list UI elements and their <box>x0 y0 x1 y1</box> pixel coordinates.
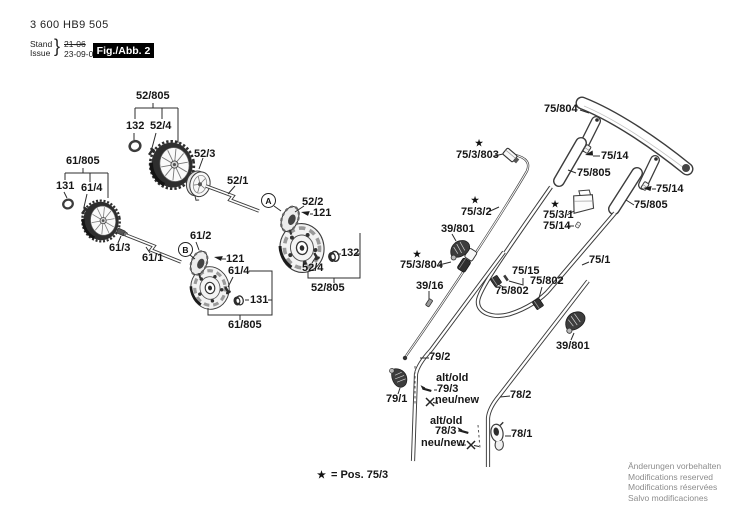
part-label-78-1: 78/1 <box>511 429 532 439</box>
part-label-52-1: 52/1 <box>227 176 248 186</box>
wheel-front-left <box>79 198 123 245</box>
part-label-alt-old-79: alt/old <box>436 373 468 383</box>
part-label-75-14-2: 75/14 <box>656 184 684 194</box>
arrow-icon <box>301 210 310 216</box>
part-label-75-802-right: 75/802 <box>530 276 564 286</box>
star-symbol: ★ <box>475 139 483 148</box>
part-label-52-805-top: 52/805 <box>136 91 170 101</box>
clamp-78-1-drawing <box>489 422 507 451</box>
assembly-marker-a: A <box>261 193 276 208</box>
part-label-79-1: 79/1 <box>386 394 407 404</box>
part-label-75-14-3: 75/14 <box>543 221 571 231</box>
part-label-75-14-1: 75/14 <box>601 151 629 161</box>
star-symbol: ★ <box>551 200 559 209</box>
ring-131-bottom <box>233 295 244 306</box>
screw-75-15-drawing <box>503 275 509 282</box>
star-symbol: ★ <box>413 250 421 259</box>
part-label-52-2: 52/2 <box>302 197 323 207</box>
cap-75-14-small <box>575 222 581 228</box>
part-label-75-802-left: 75/802 <box>495 286 529 296</box>
part-label-61-2: 61/2 <box>190 231 211 241</box>
new-screw-78-3 <box>467 441 479 449</box>
cable-guide-funnel-drawing <box>570 187 597 217</box>
part-label-79-3: 79/3 <box>437 384 458 394</box>
part-label-75-805-1: 75/805 <box>577 168 611 178</box>
part-label-75-805-2: 75/805 <box>634 200 668 210</box>
part-label-132-top: 132 <box>126 121 144 131</box>
part-label-121-b: 121 <box>226 254 244 264</box>
part-label-75-1: 75/1 <box>589 255 610 265</box>
part-label-75-3-1: 75/3/1 <box>543 210 574 220</box>
part-label-78-2: 78/2 <box>510 390 531 400</box>
part-label-79-2: 79/2 <box>429 352 450 362</box>
part-label-61-3: 61/3 <box>109 243 130 253</box>
lever-79-1 <box>389 366 408 389</box>
parts-diagram-page: 3 600 HB9 505 Stand Issue } 21-06 23-09-… <box>0 0 750 530</box>
part-label-61-4-top: 61/4 <box>81 183 102 193</box>
bolt-right <box>532 298 544 310</box>
assembly-marker-b: B <box>178 242 193 257</box>
part-label-neu-new-79: neu/new <box>435 395 479 405</box>
part-label-61-1: 61/1 <box>142 253 163 263</box>
part-label-neu-new-78: neu/new <box>421 438 465 448</box>
part-label-52-3: 52/3 <box>194 149 215 159</box>
spacer-39-16-drawing <box>425 299 432 307</box>
part-label-78-3: 78/3 <box>435 426 456 436</box>
part-label-61-805-top: 61/805 <box>66 156 100 166</box>
part-label-131-top: 131 <box>56 181 74 191</box>
part-label-131-bottom: 131 <box>250 295 268 305</box>
old-screw-79-3 <box>419 385 432 392</box>
ring-132-top <box>128 140 141 153</box>
ring-131-top <box>62 198 74 209</box>
star-symbol: ★ <box>471 196 479 205</box>
ring-132-bottom <box>327 251 340 263</box>
part-label-75-3-803: 75/3/803 <box>456 150 499 160</box>
part-label-61-4-bottom: 61/4 <box>228 266 249 276</box>
part-label-52-4-top: 52/4 <box>150 121 171 131</box>
part-label-75-3-804: 75/3/804 <box>400 260 443 270</box>
part-label-52-4-bottom: 52/4 <box>302 263 323 273</box>
part-label-75-804: 75/804 <box>544 104 578 114</box>
axle-52-1-drawing <box>206 186 259 211</box>
part-label-121-a: 121 <box>313 208 331 218</box>
part-label-39-16: 39/16 <box>416 281 444 291</box>
part-label-75-3-2: 75/3/2 <box>461 207 492 217</box>
arrow-icon <box>214 255 223 261</box>
leader-lines <box>64 103 656 445</box>
part-label-39-801-right: 39/801 <box>556 341 590 351</box>
part-label-61-805-bottom: 61/805 <box>228 320 262 330</box>
part-label-52-805-bottom: 52/805 <box>311 283 345 293</box>
diagram-canvas <box>0 0 750 530</box>
part-label-39-801-left: 39/801 <box>441 224 475 234</box>
part-label-132-bottom: 132 <box>341 248 359 258</box>
cable-end-fitting-drawing <box>502 148 520 165</box>
